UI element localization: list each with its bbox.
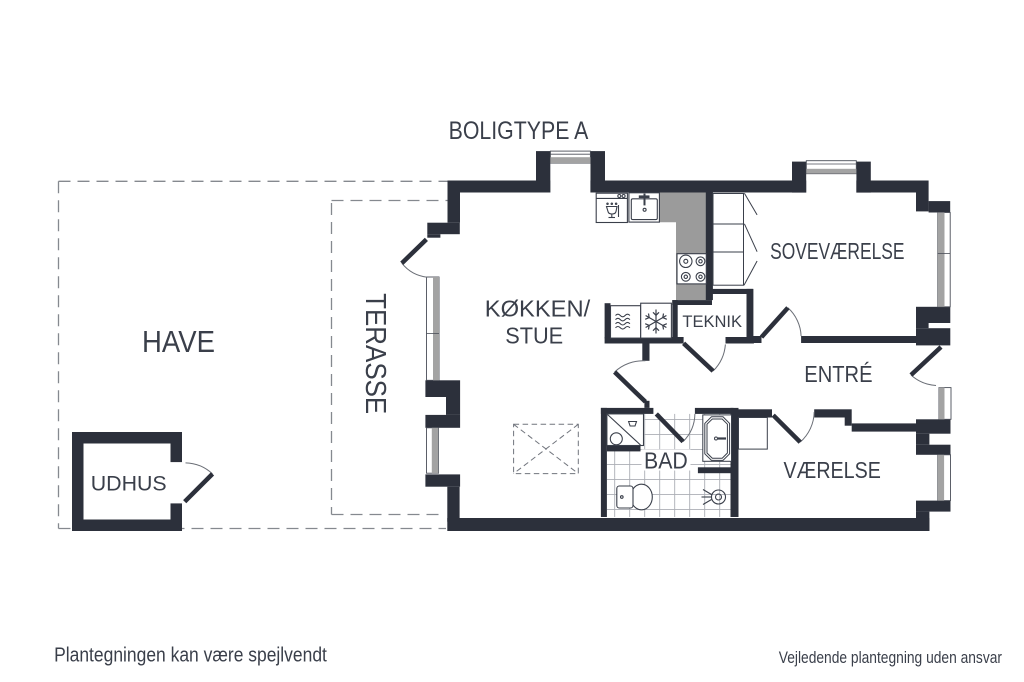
svg-text:HAVE: HAVE <box>142 324 215 359</box>
svg-text:KØKKEN/: KØKKEN/ <box>485 295 591 321</box>
svg-text:BOLIGTYPE A: BOLIGTYPE A <box>449 117 589 145</box>
svg-text:Plantegningen kan være spejlve: Plantegningen kan være spejlvendt <box>54 645 327 667</box>
svg-text:TEKNIK: TEKNIK <box>682 312 742 331</box>
svg-text:Vejledende plantegning uden an: Vejledende plantegning uden ansvar <box>779 648 1002 667</box>
svg-text:ENTRÉ: ENTRÉ <box>804 361 872 387</box>
svg-text:UDHUS: UDHUS <box>91 472 167 495</box>
svg-text:VÆRELSE: VÆRELSE <box>784 457 881 483</box>
svg-text:TERASSE: TERASSE <box>359 293 391 414</box>
svg-text:BAD: BAD <box>644 448 688 474</box>
svg-text:STUE: STUE <box>505 322 563 348</box>
svg-text:SOVEVÆRELSE: SOVEVÆRELSE <box>770 238 904 264</box>
